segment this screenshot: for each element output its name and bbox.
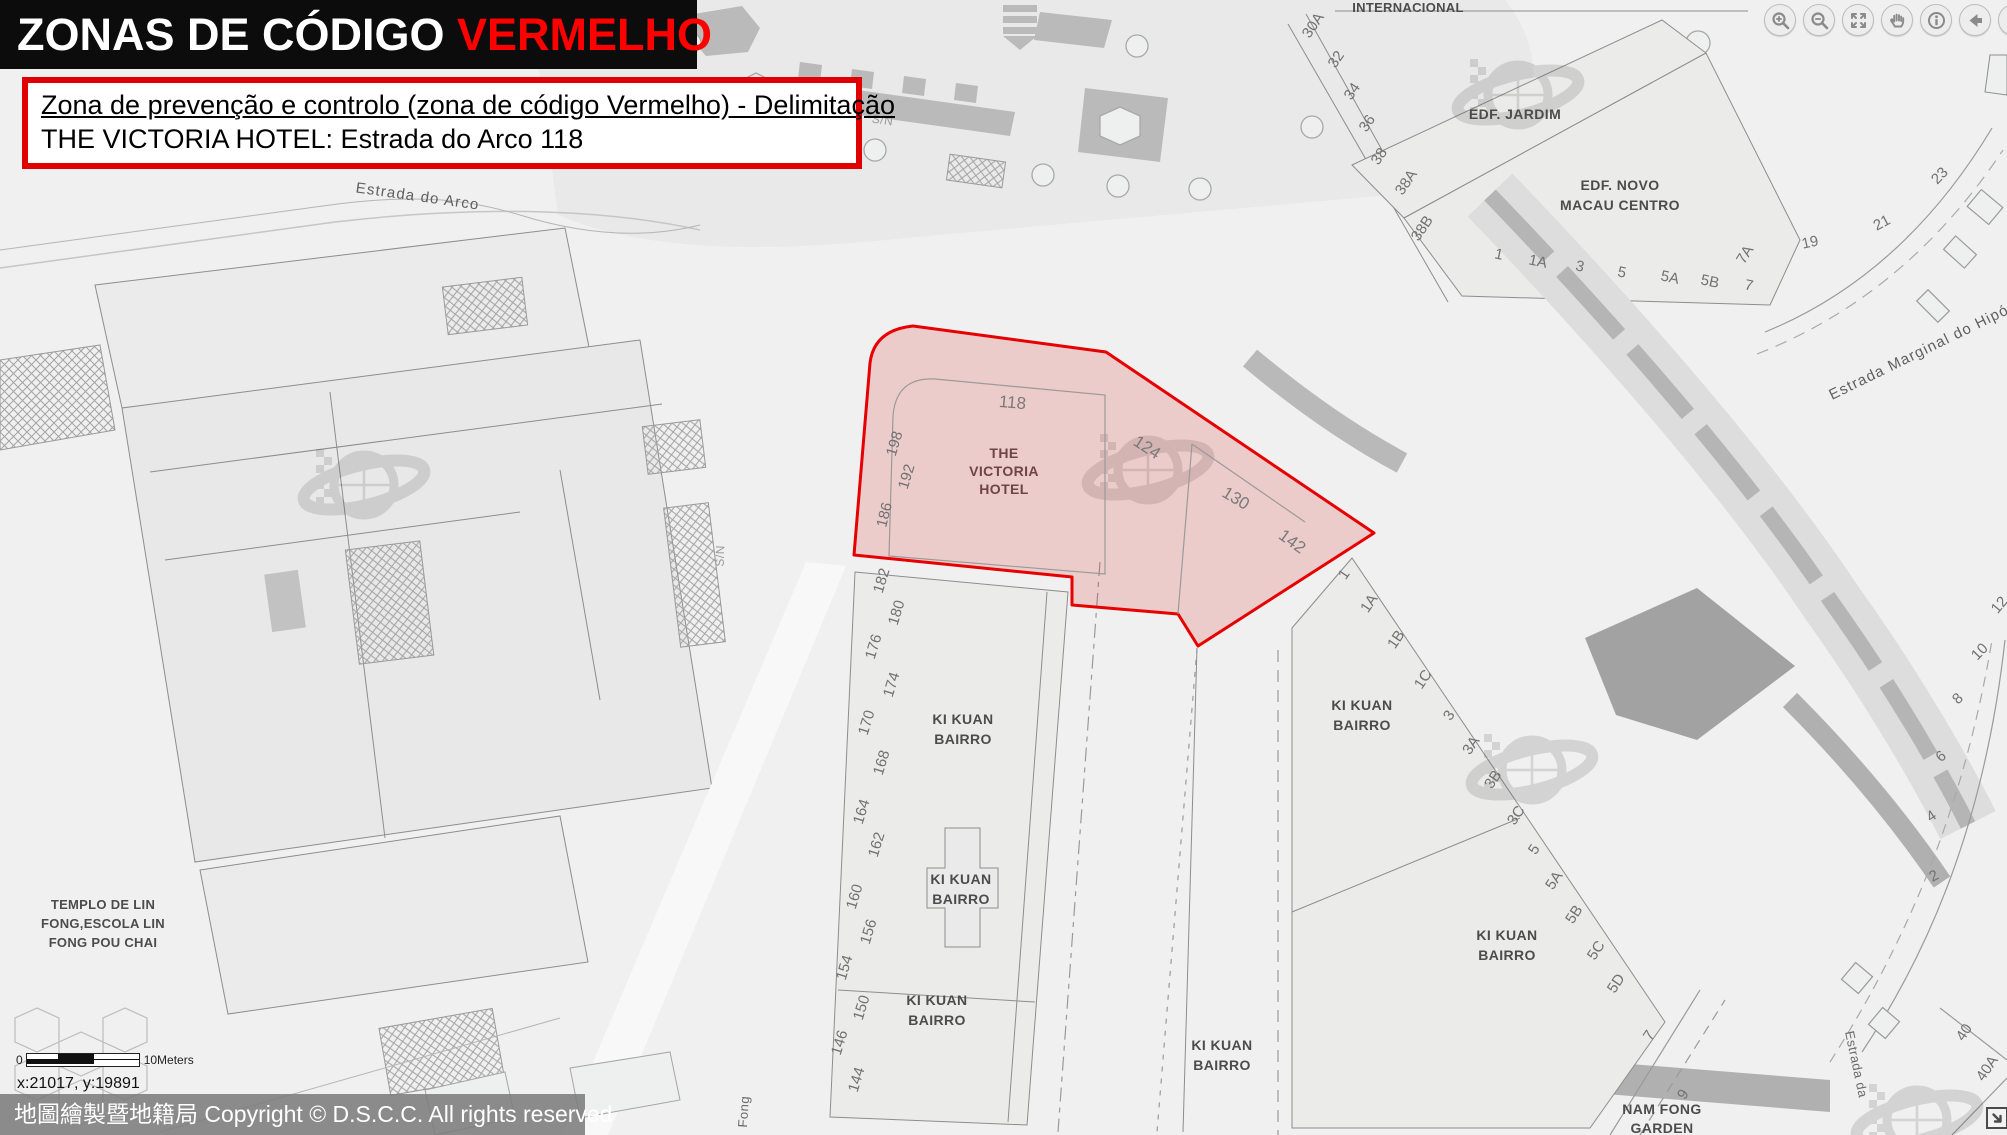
place-ki-kuan-4b: BAIRRO <box>1193 1057 1251 1073</box>
place-internacional: INTERNACIONAL <box>1352 0 1464 15</box>
place-templo-1: TEMPLO DE LIN <box>51 897 155 912</box>
place-edf-jardim: EDF. JARDIM <box>1469 106 1561 122</box>
map-viewer: Estrada do Arco Estrada Marginal do Hipó… <box>0 0 2007 1135</box>
svg-text:19: 19 <box>1800 233 1820 253</box>
coordinate-readout: x:21017, y:19891 <box>17 1075 140 1093</box>
place-ki-kuan-6a: KI KUAN <box>1476 927 1537 943</box>
place-ki-kuan-5a: KI KUAN <box>1331 697 1392 713</box>
zoom-out-icon <box>1810 11 1829 30</box>
pan-hand-icon <box>1888 11 1907 30</box>
zone-info-box: Zona de prevenção e controlo (zona de có… <box>22 77 862 169</box>
page-title-accent: VERMELHO <box>457 9 712 61</box>
place-ki-kuan-2a: KI KUAN <box>930 871 991 887</box>
street-label-fong: Fong <box>735 1095 752 1128</box>
page-title: ZONAS DE CÓDIGO <box>17 9 457 61</box>
back-arrow-icon <box>1966 11 1985 30</box>
map-toolbar <box>1764 4 2007 36</box>
zoom-in-button[interactable] <box>1764 4 1796 36</box>
pan-button[interactable] <box>1881 4 1913 36</box>
place-ki-kuan-3b: BAIRRO <box>908 1012 966 1028</box>
full-extent-button[interactable] <box>1842 4 1874 36</box>
overview-map-button[interactable] <box>1986 1107 2007 1129</box>
place-nam-fong-2: GARDEN <box>1630 1120 1693 1135</box>
scale-zero-label: 0 <box>16 1053 23 1067</box>
identify-info-icon <box>1927 11 1946 30</box>
title-banner: ZONAS DE CÓDIGO VERMELHO <box>0 0 697 69</box>
copyright-text: 地圖繪製暨地籍局 Copyright © D.S.C.C. All rights… <box>14 1101 612 1127</box>
place-templo-3: FONG POU CHAI <box>49 935 158 950</box>
scale-bar-graphic <box>26 1053 140 1067</box>
copyright-bar: 地圖繪製暨地籍局 Copyright © D.S.C.C. All rights… <box>0 1094 585 1135</box>
place-ki-kuan-1a: KI KUAN <box>932 711 993 727</box>
place-nam-fong-1: NAM FONG <box>1622 1101 1701 1117</box>
map-canvas[interactable]: Estrada do Arco Estrada Marginal do Hipó… <box>0 0 2007 1135</box>
place-ki-kuan-5b: BAIRRO <box>1333 717 1391 733</box>
place-templo-2: FONG,ESCOLA LIN <box>41 916 165 931</box>
zone-info-line1: Zona de prevenção e controlo (zona de có… <box>41 88 843 122</box>
place-ki-kuan-4a: KI KUAN <box>1191 1037 1252 1053</box>
place-edf-novo-1: EDF. NOVO <box>1580 177 1659 193</box>
scale-units-label: 10Meters <box>144 1053 194 1067</box>
place-ki-kuan-6b: BAIRRO <box>1478 947 1536 963</box>
label-sn-2: S/N <box>713 545 728 567</box>
hotel-name-line2: VICTORIA <box>969 463 1039 479</box>
parcel-118: 118 <box>998 392 1027 413</box>
overview-arrow-icon <box>1990 1111 2004 1125</box>
scale-bar: 0 10Meters <box>16 1053 194 1067</box>
identify-button[interactable] <box>1920 4 1952 36</box>
hotel-name-line1: THE <box>989 445 1018 461</box>
place-ki-kuan-1b: BAIRRO <box>934 731 992 747</box>
back-button[interactable] <box>1959 4 1991 36</box>
zoom-out-button[interactable] <box>1803 4 1835 36</box>
full-extent-icon <box>1849 11 1868 30</box>
zoom-in-icon <box>1771 11 1790 30</box>
place-ki-kuan-2b: BAIRRO <box>932 891 990 907</box>
forward-button[interactable] <box>1998 4 2007 36</box>
hotel-name-line3: HOTEL <box>979 481 1028 497</box>
place-ki-kuan-3a: KI KUAN <box>906 992 967 1008</box>
place-edf-novo-2: MACAU CENTRO <box>1560 197 1680 213</box>
zone-info-line2: THE VICTORIA HOTEL: Estrada do Arco 118 <box>41 122 843 156</box>
